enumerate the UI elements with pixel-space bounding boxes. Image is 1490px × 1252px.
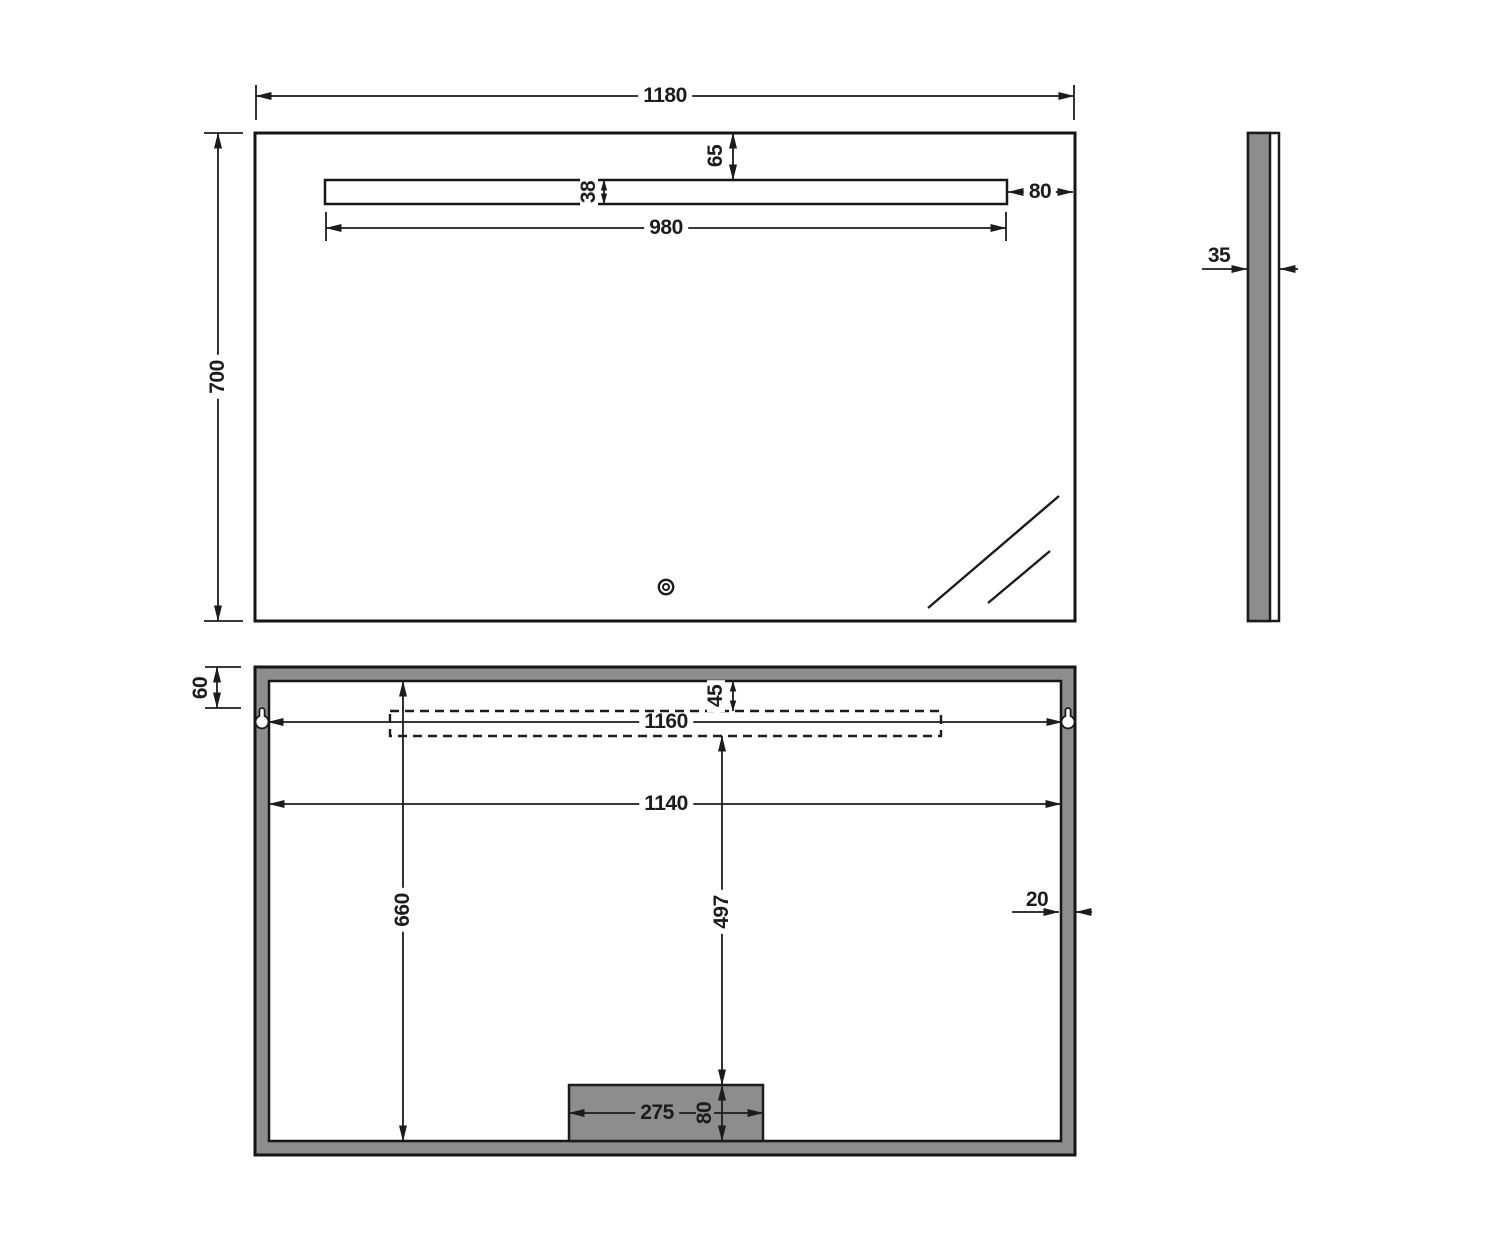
back-view [205, 667, 1092, 1155]
side-profile-body [1248, 133, 1270, 621]
light-width-label: 980 [644, 219, 688, 237]
light-height-label: 38 [580, 176, 598, 208]
light-right-offset-label: 80 [1024, 183, 1056, 201]
technical-drawing-page: 1180 700 65 38 980 80 35 60 45 1160 1140… [0, 0, 1490, 1252]
led-strip [325, 180, 1007, 204]
hanger-spacing-label: 1160 [639, 713, 693, 731]
side-view [1202, 133, 1298, 621]
light-top-offset-label: 65 [707, 140, 725, 172]
front-height-label: 700 [209, 355, 227, 399]
junction-width-label: 275 [635, 1104, 679, 1122]
junction-center-offset-label: 497 [713, 890, 731, 934]
junction-height-label: 80 [696, 1097, 714, 1129]
front-width-label: 1180 [638, 87, 692, 105]
side-thickness-label: 35 [1206, 247, 1232, 265]
mounting-height-label: 660 [394, 888, 412, 932]
technical-drawing-canvas [0, 0, 1490, 1252]
back-frame-inner [269, 681, 1061, 1141]
mirror-front-outline [255, 133, 1075, 621]
front-view [204, 85, 1075, 621]
mounting-width-label: 1140 [639, 795, 693, 813]
led-top-offset-label: 45 [707, 680, 725, 712]
frame-thickness-label: 20 [1024, 891, 1050, 909]
hanger-top-offset-label: 60 [192, 672, 210, 704]
